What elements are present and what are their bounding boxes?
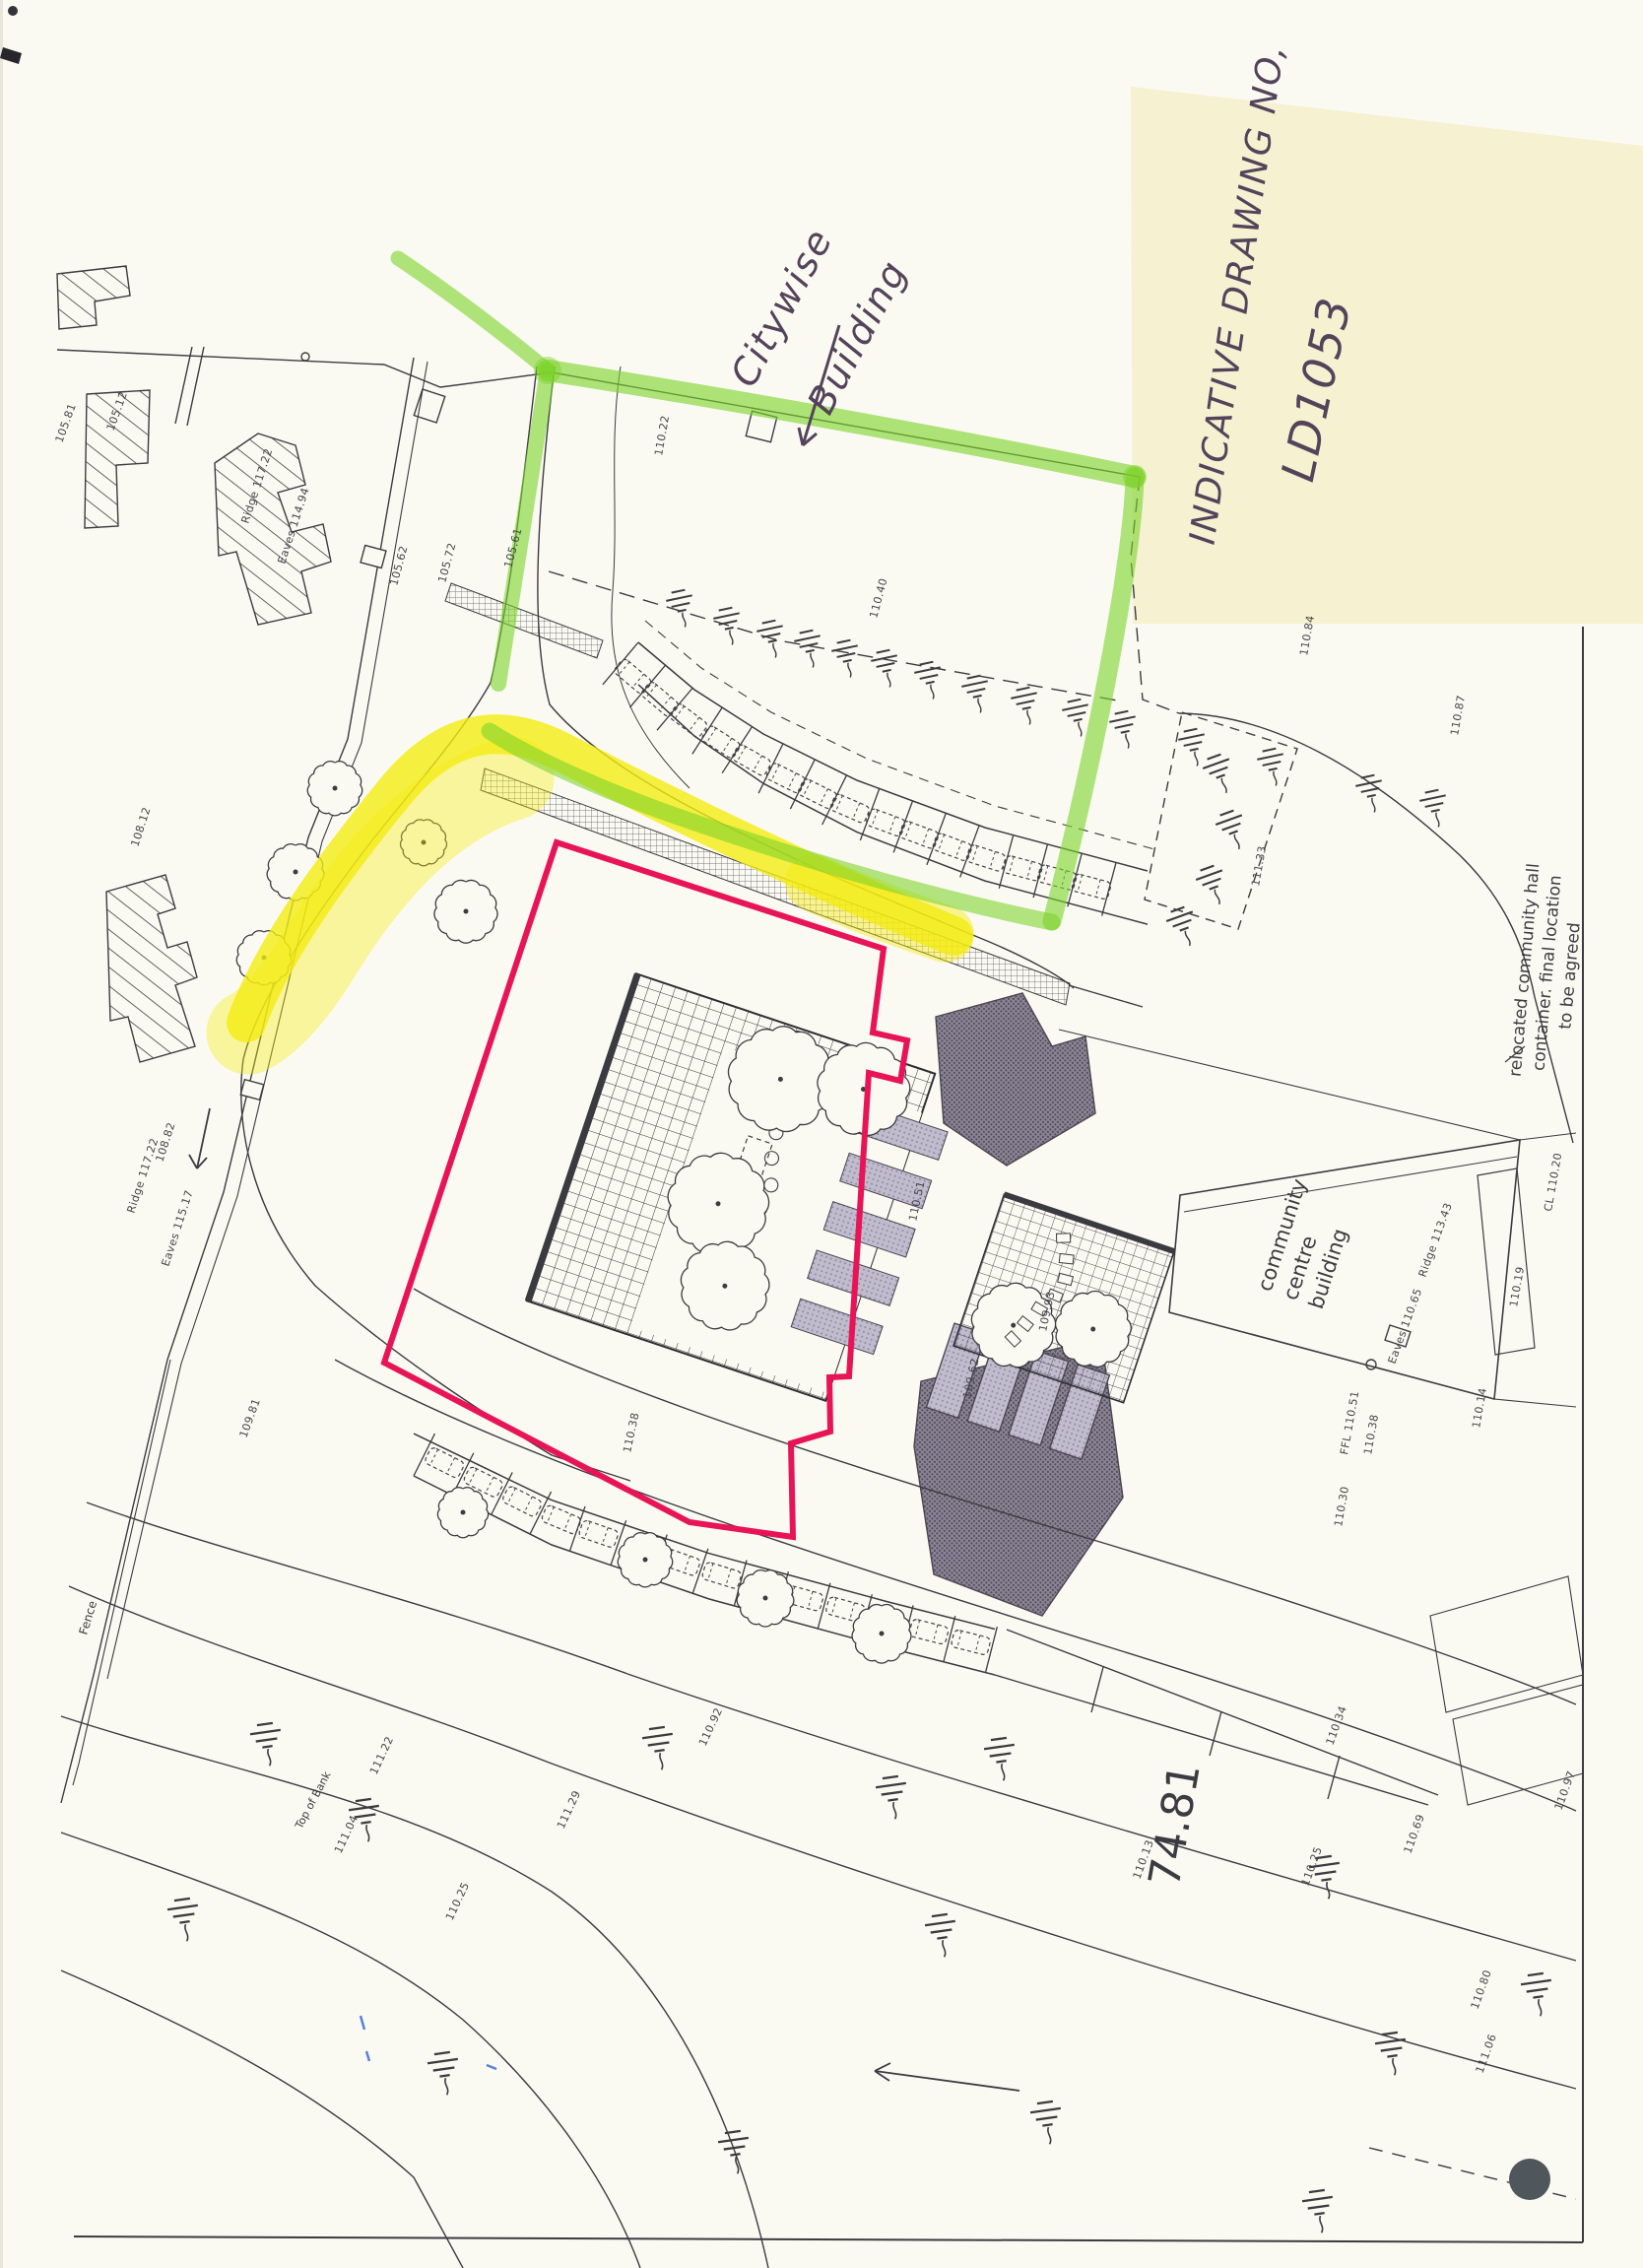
site-plan-drawing: 110.22105.61105.62105.72105.81105.12110.… <box>0 0 1643 2268</box>
stepping-stone <box>1059 1253 1074 1264</box>
scan-corner-dot <box>8 6 18 16</box>
green-corner-blob-2 <box>1123 465 1147 489</box>
stepping-stone <box>1056 1234 1070 1242</box>
scanned-site-plan-page: 110.22105.61105.62105.72105.81105.12110.… <box>0 0 1643 2268</box>
green-corner-blob-1 <box>534 357 561 384</box>
scan-edge <box>0 0 3 2268</box>
punch-hole-mark <box>1509 2159 1550 2200</box>
tree-cloud <box>307 762 361 816</box>
tree-cloud <box>437 1488 488 1538</box>
tree-cloud <box>618 1533 672 1587</box>
